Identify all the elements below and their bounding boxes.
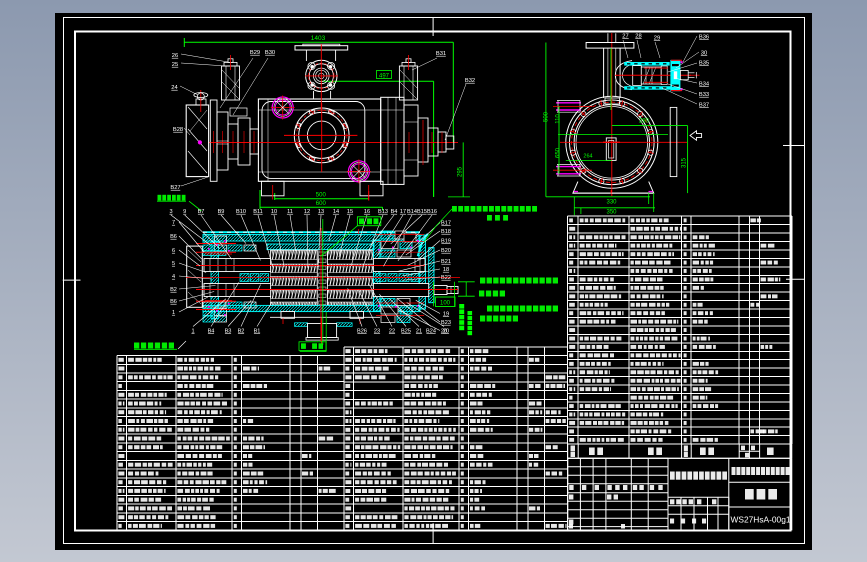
svg-text:315: 315 bbox=[682, 157, 688, 168]
svg-text:650: 650 bbox=[556, 147, 562, 158]
svg-text:600: 600 bbox=[316, 201, 327, 207]
svg-text:500: 500 bbox=[544, 111, 550, 122]
svg-text:110: 110 bbox=[556, 114, 562, 124]
svg-text:500: 500 bbox=[316, 193, 327, 199]
svg-text:295: 295 bbox=[458, 166, 464, 177]
svg-text:497: 497 bbox=[379, 73, 390, 79]
svg-text:1403: 1403 bbox=[311, 35, 326, 42]
svg-text:100: 100 bbox=[440, 301, 451, 307]
svg-text:330: 330 bbox=[606, 199, 617, 205]
svg-text:350: 350 bbox=[606, 209, 617, 215]
svg-text:264: 264 bbox=[583, 154, 592, 160]
svg-text:280: 280 bbox=[639, 119, 650, 125]
svg-text:WS27HsA-00g1: WS27HsA-00g1 bbox=[730, 515, 790, 525]
